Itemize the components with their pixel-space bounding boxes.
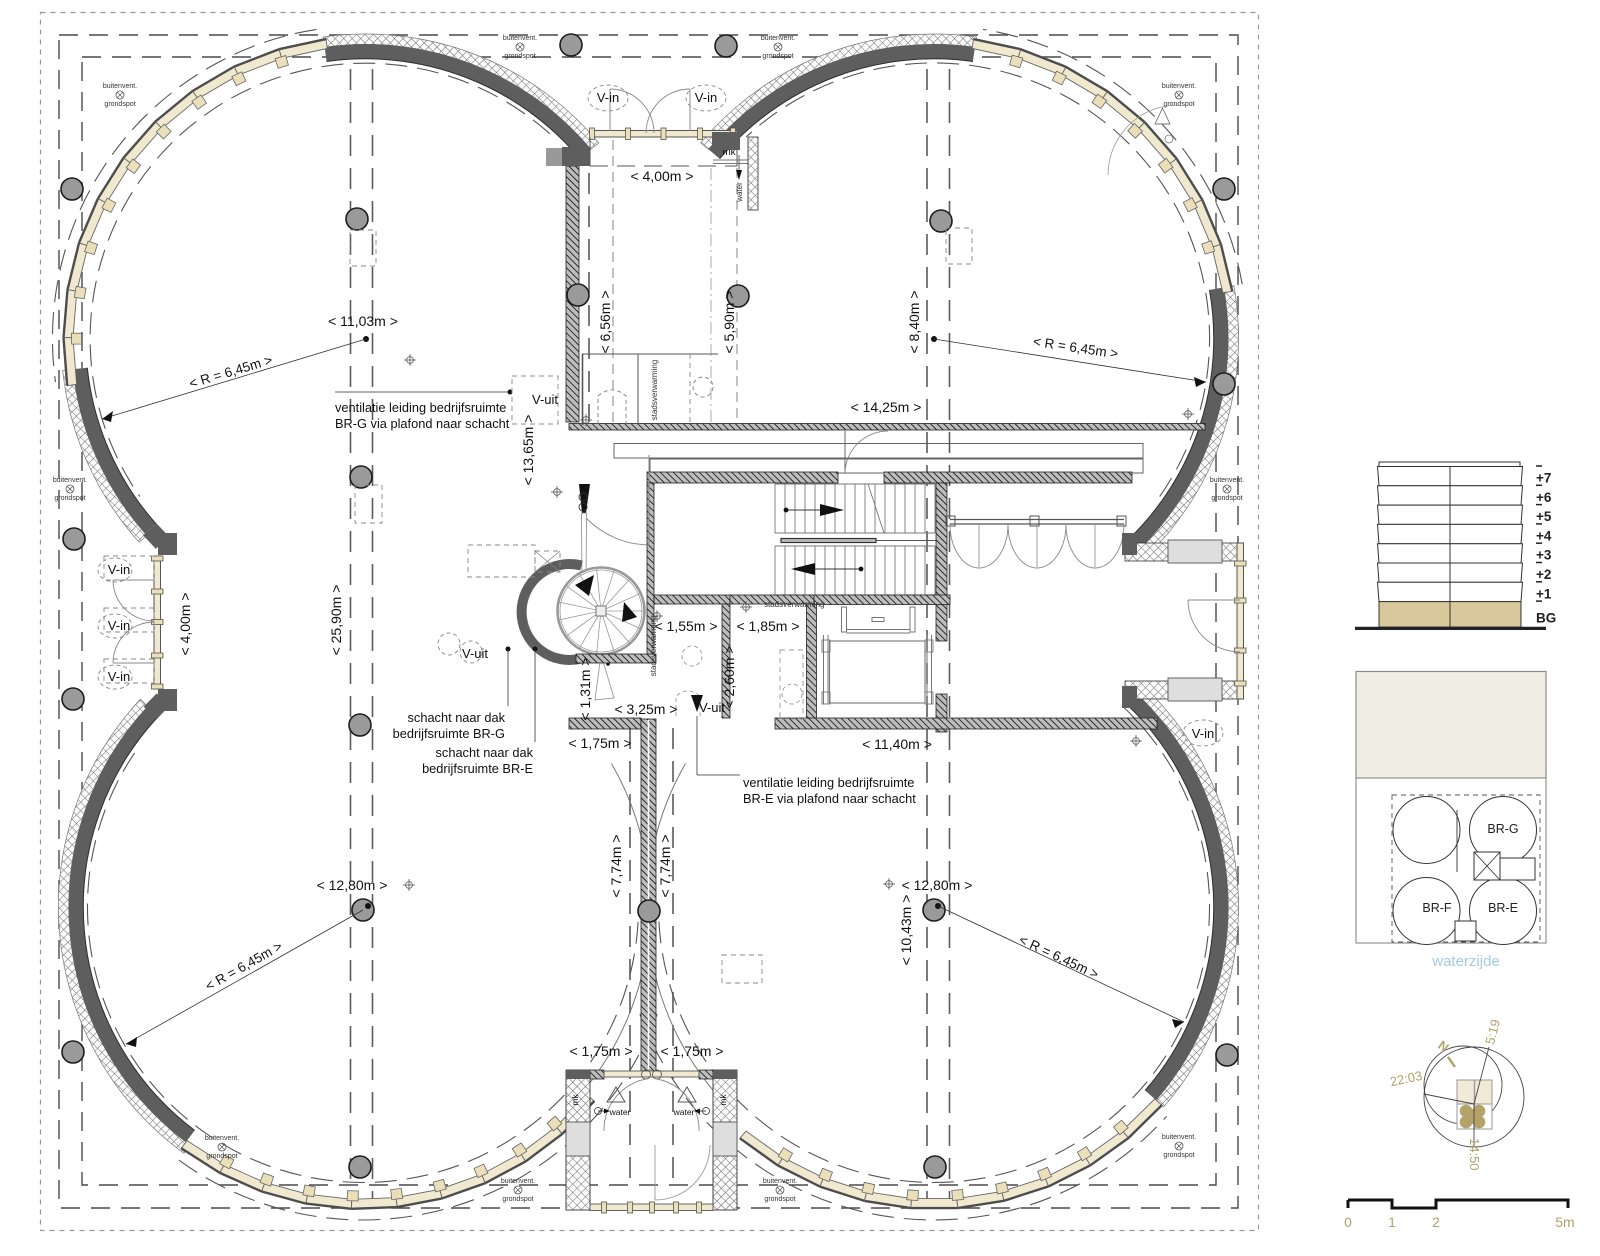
svg-text:< 12,80m >: < 12,80m > [902, 877, 973, 893]
svg-text:BR-E: BR-E [1488, 901, 1518, 915]
svg-text:BR-E via plafond naar schacht: BR-E via plafond naar schacht [743, 791, 916, 806]
svg-text:grondspot: grondspot [1211, 495, 1242, 502]
svg-text:V-uit: V-uit [532, 392, 558, 407]
svg-text:buitenvent.: buitenvent. [763, 1178, 797, 1185]
svg-text:< 7,74m >: < 7,74m > [608, 834, 624, 897]
svg-text:mk: mk [718, 1094, 728, 1106]
svg-text:V-in: V-in [597, 90, 619, 105]
svg-text:V-in: V-in [108, 562, 130, 577]
svg-text:stadsverwarming: stadsverwarming [764, 600, 824, 609]
svg-text:water: water [735, 182, 744, 203]
svg-text:< 11,40m >: < 11,40m > [862, 736, 932, 752]
svg-text:< 1,31m >: < 1,31m > [577, 657, 593, 720]
svg-text:+3: +3 [1536, 548, 1552, 563]
svg-text:buitenvent.: buitenvent. [103, 83, 137, 90]
svg-text:buitenvent.: buitenvent. [501, 1178, 535, 1185]
svg-text:+5: +5 [1536, 509, 1552, 524]
svg-text:stadsverwarming: stadsverwarming [650, 360, 659, 420]
svg-text:< 11,03m >: < 11,03m > [328, 313, 398, 329]
svg-text:grondspot: grondspot [1163, 101, 1194, 108]
svg-text:V-in: V-in [695, 90, 717, 105]
svg-text:ventilatie leiding bedrijfsrui: ventilatie leiding bedrijfsruimte [335, 400, 506, 415]
svg-text:buitenvent.: buitenvent. [53, 477, 87, 484]
svg-text:buitenvent.: buitenvent. [205, 1135, 239, 1142]
svg-text:grondspot: grondspot [1163, 1152, 1194, 1159]
svg-text:bedrijfsruimte BR-G: bedrijfsruimte BR-G [393, 726, 505, 741]
svg-text:water: water [609, 1107, 631, 1117]
svg-text:stadsverwarming: stadsverwarming [649, 616, 658, 676]
svg-text:14:50: 14:50 [1467, 1138, 1482, 1171]
svg-text:bedrijfsruimte BR-E: bedrijfsruimte BR-E [422, 761, 533, 776]
svg-text:BR-G: BR-G [1487, 822, 1518, 836]
svg-text:< 25,90m >: < 25,90m > [328, 585, 344, 656]
svg-text:< 7,74m >: < 7,74m > [657, 834, 673, 897]
svg-text:grondspot: grondspot [206, 1153, 237, 1160]
svg-text:buitenvent.: buitenvent. [1210, 477, 1244, 484]
svg-text:+6: +6 [1536, 490, 1552, 505]
svg-text:buitenvent.: buitenvent. [1162, 1134, 1196, 1141]
svg-text:grondspot: grondspot [54, 495, 85, 502]
svg-text:< 8,40m >: < 8,40m > [906, 290, 922, 353]
svg-text:< 12,80m >: < 12,80m > [317, 877, 388, 893]
svg-text:+4: +4 [1536, 528, 1552, 543]
svg-text:ventilatie leiding bedrijfsrui: ventilatie leiding bedrijfsruimte [743, 775, 914, 790]
svg-text:BG: BG [1536, 611, 1556, 626]
svg-text:< 5,90m >: < 5,90m > [721, 290, 737, 353]
svg-text:grondspot: grondspot [762, 53, 793, 60]
svg-text:< 6,56m >: < 6,56m > [597, 290, 613, 353]
svg-text:V-in: V-in [108, 618, 130, 633]
svg-text:+7: +7 [1536, 471, 1551, 486]
svg-text:+2: +2 [1536, 567, 1551, 582]
svg-text:< 4,00m >: < 4,00m > [630, 168, 693, 184]
svg-text:5m: 5m [1555, 1214, 1574, 1230]
svg-text:< 1,75m >: < 1,75m > [568, 735, 631, 751]
svg-text:waterzijde: waterzijde [1431, 953, 1500, 970]
svg-text:BR-F: BR-F [1422, 901, 1452, 915]
svg-text:< 1,55m >: < 1,55m > [654, 618, 717, 634]
svg-text:< 4,00m >: < 4,00m > [177, 592, 193, 655]
svg-text:1: 1 [1388, 1214, 1396, 1230]
svg-text:grondspot: grondspot [504, 53, 535, 60]
svg-text:< 1,85m >: < 1,85m > [736, 618, 799, 634]
svg-text:0: 0 [1344, 1214, 1352, 1230]
svg-text:V-in: V-in [108, 669, 130, 684]
svg-text:grondspot: grondspot [104, 101, 135, 108]
svg-text:buitenvent.: buitenvent. [761, 35, 795, 42]
svg-text:grondspot: grondspot [764, 1196, 795, 1203]
svg-text:schacht naar dak: schacht naar dak [436, 745, 534, 760]
svg-text:V-in: V-in [1192, 726, 1214, 741]
svg-text:< 3,25m >: < 3,25m > [614, 701, 677, 717]
svg-text:V-uit: V-uit [462, 646, 488, 661]
svg-text:< 10,43m >: < 10,43m > [898, 895, 914, 966]
svg-text:+1: +1 [1536, 586, 1552, 601]
svg-text:buitenvent.: buitenvent. [1162, 83, 1196, 90]
svg-text:< 13,65m >: < 13,65m > [520, 415, 536, 486]
svg-text:V-uit: V-uit [699, 700, 725, 715]
svg-text:water: water [673, 1107, 695, 1117]
svg-text:mk: mk [570, 1094, 580, 1106]
svg-text:BR-G via plafond naar schacht: BR-G via plafond naar schacht [335, 416, 510, 431]
svg-text:grondspot: grondspot [502, 1196, 533, 1203]
svg-text:schacht naar dak: schacht naar dak [408, 710, 506, 725]
svg-text:< 1,75m >: < 1,75m > [660, 1043, 723, 1059]
svg-text:2: 2 [1432, 1214, 1440, 1230]
svg-text:< 14,25m >: < 14,25m > [851, 399, 922, 415]
svg-text:buitenvent.: buitenvent. [503, 35, 537, 42]
svg-text:< 1,75m >: < 1,75m > [569, 1043, 632, 1059]
